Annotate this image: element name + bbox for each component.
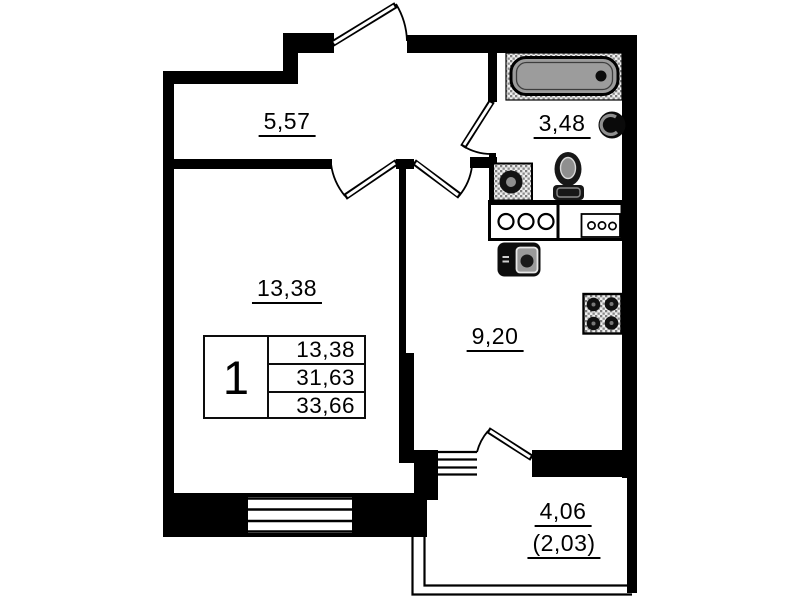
- balcony-area-label: 4,06: [535, 499, 592, 527]
- entrance-door: [332, 4, 407, 44]
- legend-area: 31,63: [269, 365, 364, 393]
- kitchen-door: [414, 162, 472, 196]
- apartment-legend: 1 13,38 31,63 33,66: [203, 335, 366, 419]
- balcony-coefficient-area-label: (2,03): [527, 531, 600, 559]
- legend-areas-column: 13,38 31,63 33,66: [269, 337, 364, 417]
- toilet-icon: [553, 152, 584, 200]
- floor-plan-drawing: [0, 0, 799, 600]
- living-room-door: [331, 162, 397, 197]
- legend-total-area: 33,66: [269, 393, 364, 419]
- living-room-window: [248, 497, 352, 533]
- legend-living-area: 13,38: [269, 337, 364, 365]
- washing-machine-icon: [493, 164, 532, 201]
- legend-rooms-count: 1: [205, 337, 269, 417]
- floor-plan: 5,57 3,48 13,38 9,20 4,06 (2,03) 1 13,38…: [0, 0, 799, 600]
- stove-icon: [584, 294, 622, 334]
- wash-basin-icon: [599, 112, 626, 139]
- hallway-area-label: 5,57: [259, 109, 316, 137]
- kitchen-area-label: 9,20: [467, 324, 524, 352]
- bathroom-door: [463, 101, 492, 154]
- bathtub-icon: [506, 53, 622, 100]
- balcony-door: [477, 430, 532, 458]
- bathroom-area-label: 3,48: [534, 111, 591, 139]
- living-room-area-label: 13,38: [252, 276, 322, 304]
- kitchen-counter-icon: [490, 204, 623, 240]
- kitchen-sink-icon: [498, 243, 541, 277]
- kitchen-window: [438, 451, 477, 476]
